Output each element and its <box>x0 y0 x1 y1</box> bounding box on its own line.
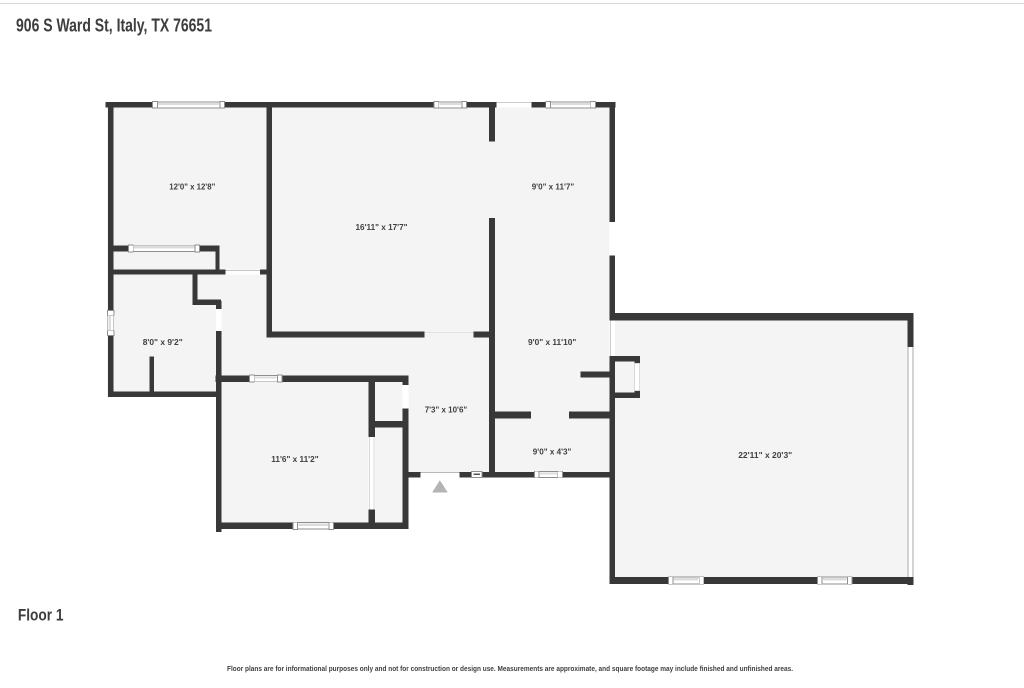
svg-text:9'0" x 11'7": 9'0" x 11'7" <box>532 182 575 192</box>
svg-text:Floor 1: Floor 1 <box>18 606 64 625</box>
svg-text:22'11" x 20'3": 22'11" x 20'3" <box>738 450 792 460</box>
svg-text:Floor plans are for informatio: Floor plans are for informational purpos… <box>227 664 793 673</box>
svg-text:906 S Ward St, Italy, TX 76651: 906 S Ward St, Italy, TX 76651 <box>16 15 212 36</box>
svg-text:9'0" x 11'10": 9'0" x 11'10" <box>528 337 576 347</box>
svg-text:9'0" x 4'3": 9'0" x 4'3" <box>533 447 572 457</box>
svg-text:7'3" x 10'6": 7'3" x 10'6" <box>425 404 468 414</box>
svg-text:12'0" x 12'8": 12'0" x 12'8" <box>169 182 215 192</box>
svg-text:16'11" x 17'7": 16'11" x 17'7" <box>356 222 408 232</box>
svg-text:8'0" x 9'2": 8'0" x 9'2" <box>143 337 183 347</box>
svg-text:11'6" x 11'2": 11'6" x 11'2" <box>271 454 318 464</box>
